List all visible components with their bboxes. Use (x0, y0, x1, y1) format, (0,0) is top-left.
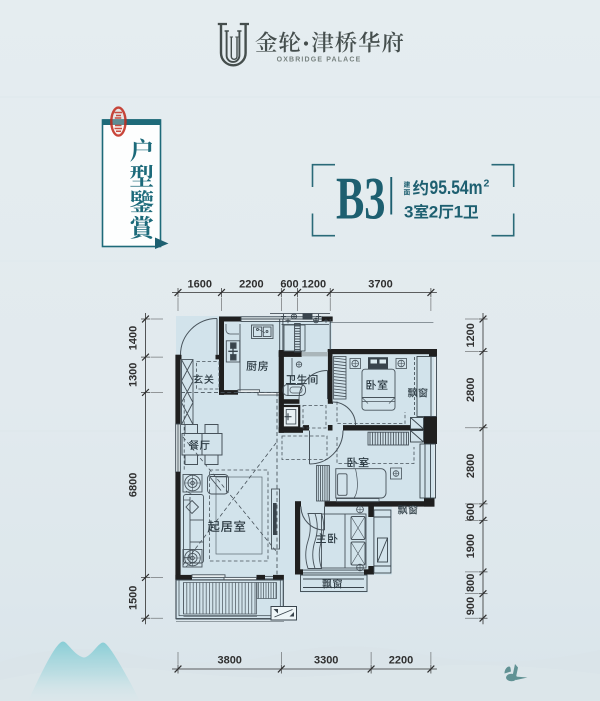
svg-text:6800: 6800 (128, 473, 140, 497)
svg-text:1200: 1200 (465, 323, 477, 347)
svg-text:95.54m: 95.54m (430, 177, 483, 199)
svg-text:1300: 1300 (128, 363, 140, 387)
svg-text:600: 600 (280, 279, 298, 291)
svg-text:1500: 1500 (128, 586, 140, 610)
svg-text:3300: 3300 (314, 655, 338, 667)
svg-text:1400: 1400 (128, 326, 140, 350)
svg-text:2: 2 (484, 178, 490, 190)
svg-text:2: 2 (429, 203, 438, 222)
svg-text:3: 3 (404, 203, 413, 222)
svg-text:1600: 1600 (188, 279, 212, 291)
svg-text:1: 1 (454, 203, 463, 222)
svg-text:1200: 1200 (302, 279, 326, 291)
svg-text:B3: B3 (336, 166, 386, 232)
svg-text:OXBRIDGE PALACE: OXBRIDGE PALACE (277, 57, 362, 64)
svg-text:900: 900 (465, 597, 477, 615)
svg-text:2800: 2800 (465, 454, 477, 478)
svg-text:2200: 2200 (389, 655, 413, 667)
svg-text:1900: 1900 (465, 534, 477, 558)
svg-text:800: 800 (465, 574, 477, 592)
svg-text:2800: 2800 (465, 377, 477, 401)
svg-text:2200: 2200 (239, 279, 263, 291)
svg-text:3800: 3800 (217, 655, 241, 667)
svg-text:600: 600 (465, 503, 477, 521)
svg-text:3700: 3700 (368, 279, 392, 291)
